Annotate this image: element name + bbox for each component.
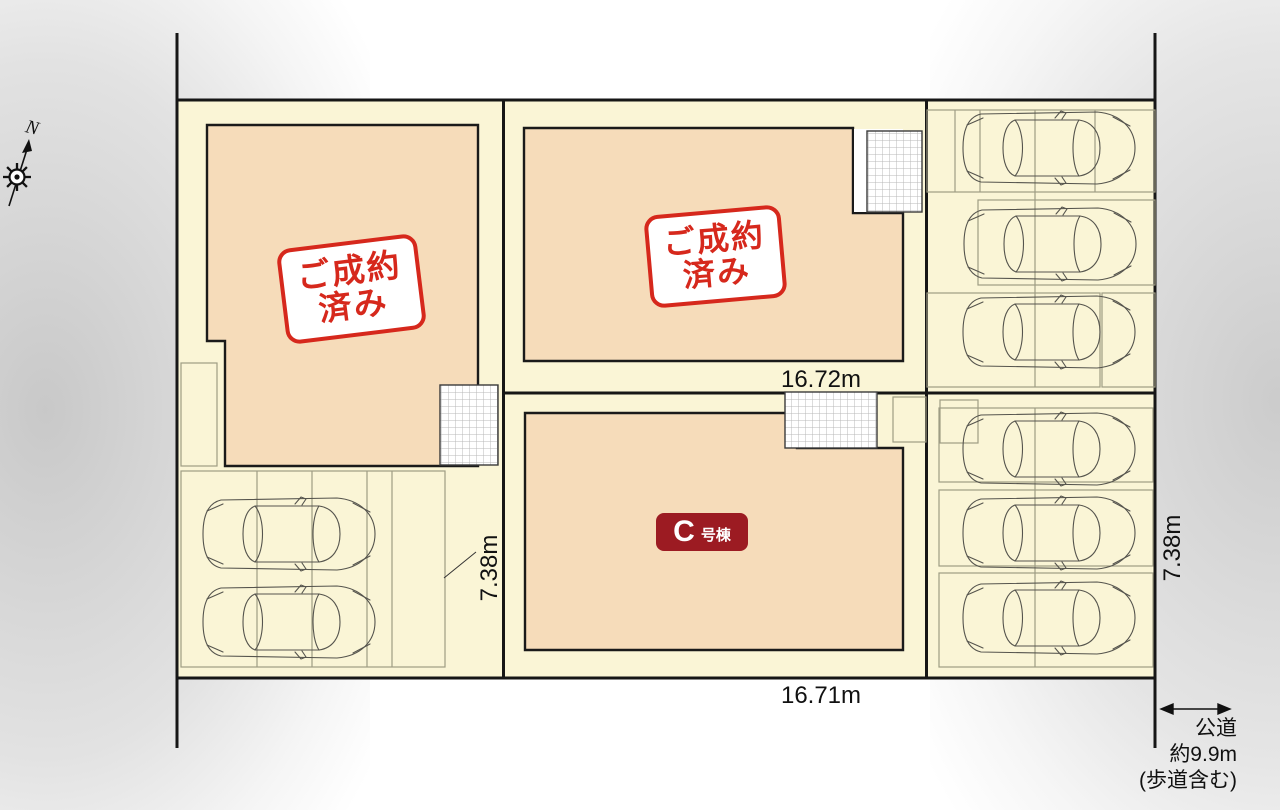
road-label: 公道 約9.9m (歩道含む) xyxy=(1117,716,1237,794)
entrance-hatch-a xyxy=(440,385,498,465)
dimension-lot-b-width: 16.72m xyxy=(761,366,881,394)
road-note: (歩道含む) xyxy=(1117,768,1237,794)
compass-north-label: N xyxy=(22,116,42,140)
building-c-suffix: 号棟 xyxy=(701,522,731,543)
dimension-lot-c-width: 16.71m xyxy=(761,682,881,710)
building-c-badge: C 号棟 xyxy=(656,513,748,551)
sold-stamp-lot-b: ご成約 済み xyxy=(643,204,788,309)
compass-icon: N xyxy=(3,116,42,206)
building-c-letter: C xyxy=(673,517,695,547)
entrance-hatch-b xyxy=(867,131,922,212)
entrance-hatch-c xyxy=(785,392,877,448)
dimension-right-depth: 7.38m xyxy=(1159,503,1185,593)
road-name: 公道 xyxy=(1117,716,1237,742)
sold-stamp-lot-a: ご成約 済み xyxy=(276,233,428,345)
road-width-arrow xyxy=(1161,704,1230,714)
site-plan-drawing: N xyxy=(0,0,1280,810)
site-plan-canvas: N ご成約 済み ご成約 済み C 号棟 16.72m 16.71m 7.38m… xyxy=(0,0,1280,810)
road-width: 約9.9m xyxy=(1117,742,1237,768)
dimension-lot-c-depth: 7.38m xyxy=(476,523,502,613)
